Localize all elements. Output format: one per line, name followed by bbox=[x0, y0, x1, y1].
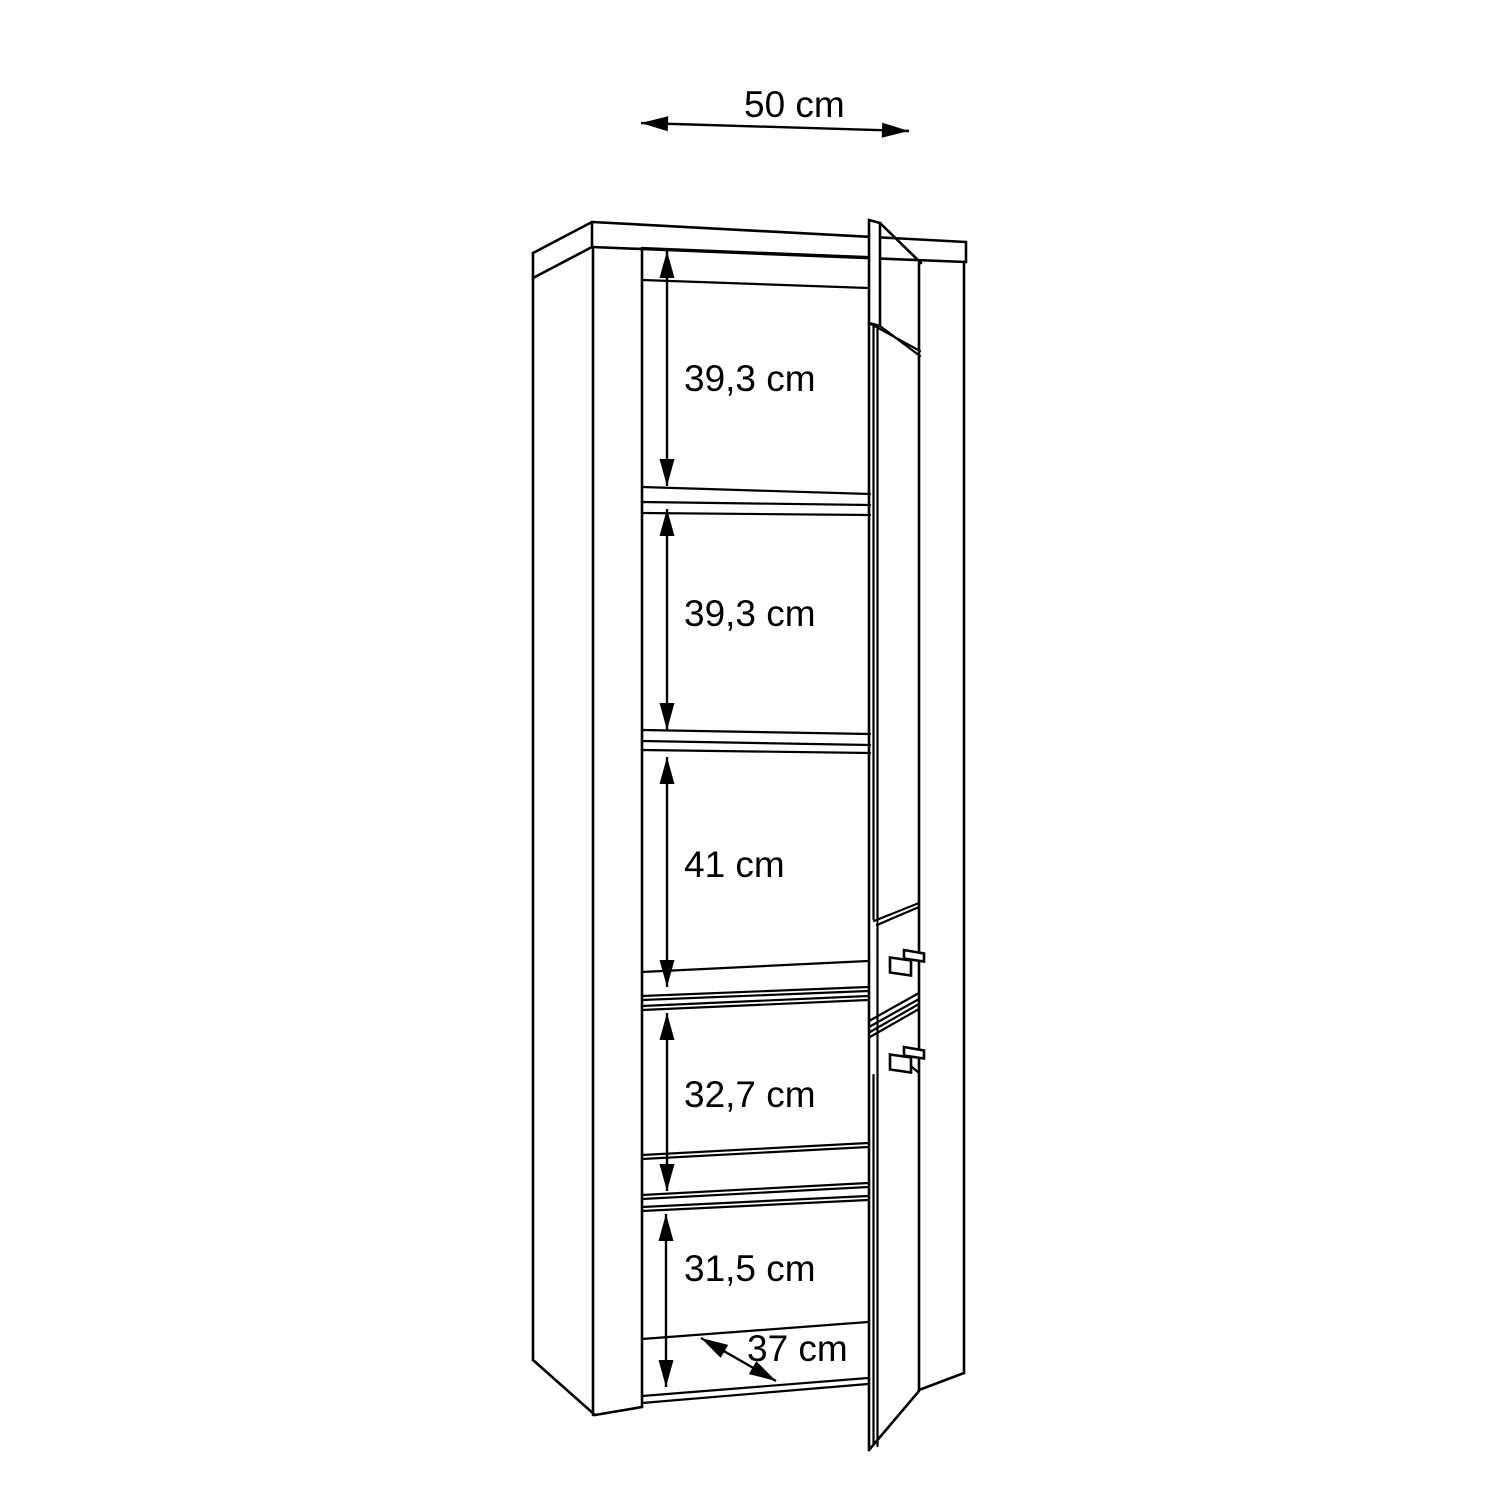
shelf-2-line bbox=[642, 750, 870, 753]
top-board-left-top-edge bbox=[533, 222, 592, 253]
section-2-dimension-label: 39,3 cm bbox=[684, 593, 816, 634]
cabinet-drawing: 50 cm 39,3 cm 39,3 cm 41 cm 32,7 cm 31,5… bbox=[0, 0, 1500, 1500]
upper-door-handle-arm bbox=[904, 950, 924, 962]
section-4-dimension-label: 32,7 cm bbox=[684, 1074, 816, 1115]
shelf-1 bbox=[642, 487, 870, 515]
right-panel-bottom-edge bbox=[919, 1373, 964, 1390]
shelf-1-line bbox=[642, 487, 870, 494]
shelf-1-line bbox=[642, 502, 870, 505]
shelf-3 bbox=[642, 961, 868, 1010]
top-board-left-bottom-edge bbox=[533, 247, 592, 278]
door-bottom-rail-top-edge bbox=[874, 903, 919, 921]
cabinet-top-board bbox=[533, 222, 966, 278]
shelf-4 bbox=[642, 1143, 868, 1211]
interior-top-front-edge bbox=[642, 248, 868, 257]
left-side-panel bbox=[533, 247, 642, 1415]
open-door bbox=[869, 220, 924, 1450]
left-panel-bottom-edge bbox=[533, 1360, 595, 1415]
section-5-dimension-label: 31,5 cm bbox=[684, 1248, 816, 1289]
interior-ceiling-edge bbox=[642, 280, 868, 288]
section-1-dimension-label: 39,3 cm bbox=[684, 358, 816, 399]
section-3-dimension-label: 41 cm bbox=[684, 844, 785, 885]
dimension-diagram: 50 cm 39,3 cm 39,3 cm 41 cm 32,7 cm 31,5… bbox=[0, 0, 1500, 1500]
top-board-top-edge bbox=[592, 222, 966, 242]
shelf-2-line bbox=[642, 730, 870, 734]
shelf-2 bbox=[642, 730, 870, 753]
door-top-rail-bottom-edge-inner bbox=[880, 326, 920, 356]
width-dimension-label: 50 cm bbox=[744, 84, 845, 125]
shelf-3-line bbox=[642, 961, 868, 972]
front-stile-bottom-edge bbox=[595, 1407, 642, 1415]
dimension-labels: 50 cm 39,3 cm 39,3 cm 41 cm 32,7 cm 31,5… bbox=[684, 84, 848, 1369]
shelf-1-line bbox=[642, 513, 870, 515]
right-side-panel bbox=[919, 262, 964, 1390]
shelf-2-line bbox=[642, 741, 870, 745]
door-top-rail-top-edge bbox=[880, 223, 921, 263]
depth-dimension-label: 37 cm bbox=[747, 1328, 848, 1369]
door-top-rail-edge-strip bbox=[869, 220, 880, 326]
lower-door-handle-arm bbox=[904, 1047, 924, 1059]
door-bottom-rail-top-edge-inner bbox=[877, 907, 919, 925]
